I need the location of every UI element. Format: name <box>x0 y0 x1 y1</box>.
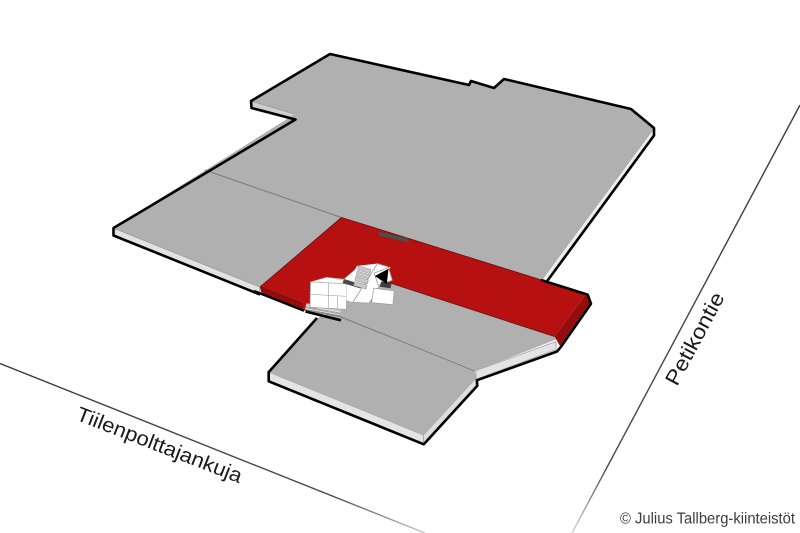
svg-text:Tiilenpolttajankuja: Tiilenpolttajankuja <box>73 403 246 488</box>
svg-text:Petikontie: Petikontie <box>661 289 729 390</box>
svg-text:© Julius Tallberg-kiinteistöt: © Julius Tallberg-kiinteistöt <box>620 511 796 528</box>
